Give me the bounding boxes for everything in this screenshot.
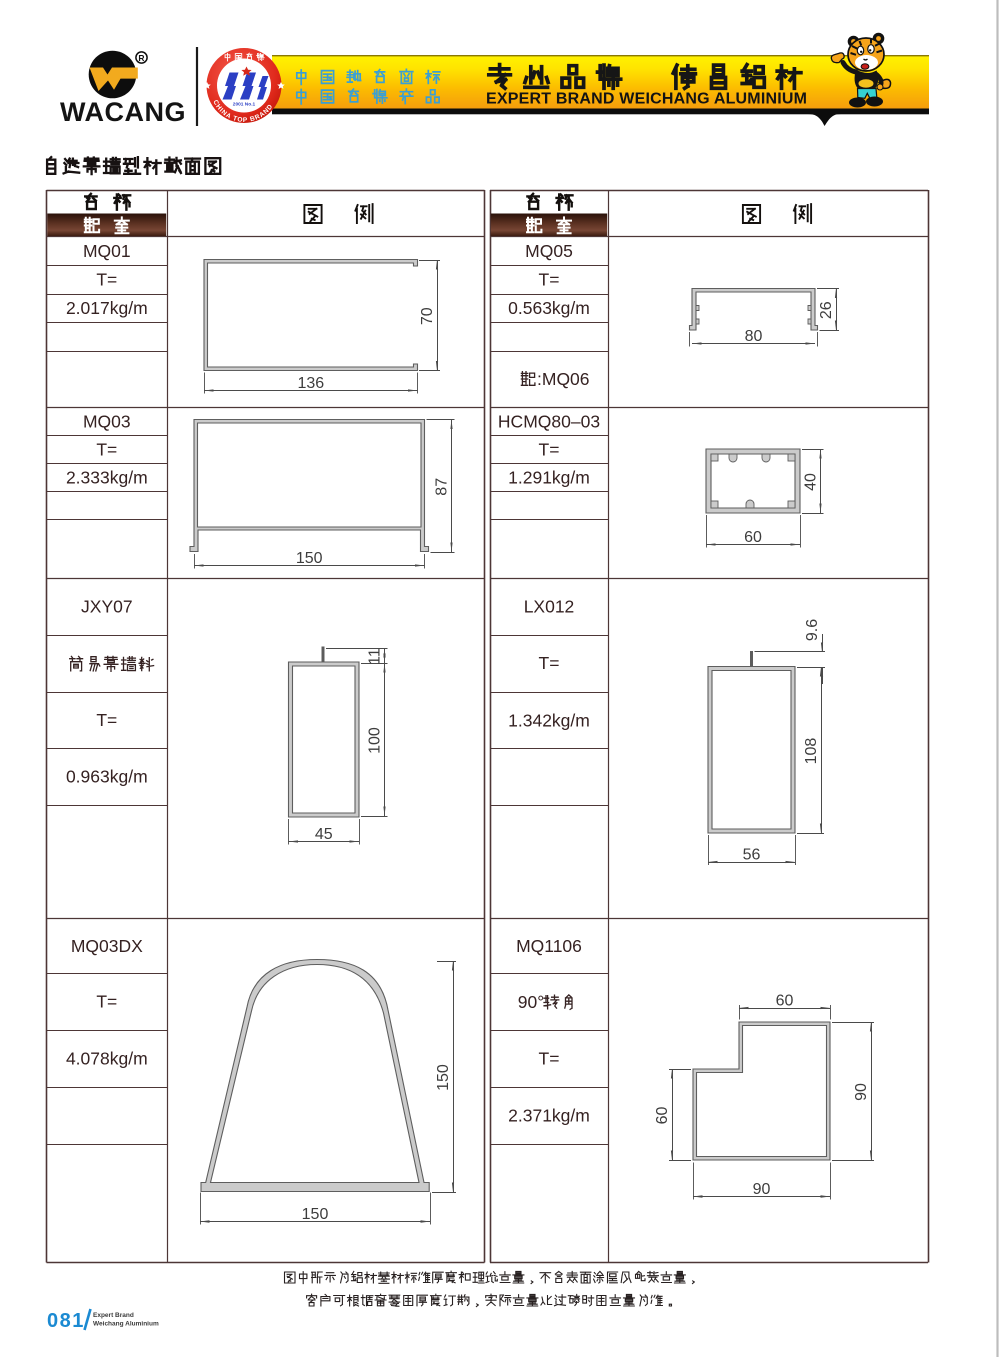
svg-text:MQ1106: MQ1106 xyxy=(516,936,582,956)
svg-text:26: 26 xyxy=(818,301,835,319)
svg-text:T=: T= xyxy=(539,270,560,290)
svg-text:60: 60 xyxy=(654,1107,671,1125)
svg-text:JXY07: JXY07 xyxy=(81,597,133,617)
svg-text:MQ03: MQ03 xyxy=(83,412,131,432)
svg-text::MQ06: :MQ06 xyxy=(537,369,590,389)
svg-text:2.017kg/m: 2.017kg/m xyxy=(66,298,148,318)
svg-text:9.6: 9.6 xyxy=(804,619,821,641)
svg-text:150: 150 xyxy=(296,550,323,567)
svg-text:WACANG: WACANG xyxy=(60,97,186,127)
svg-text:Expert Brand: Expert Brand xyxy=(93,1312,134,1319)
svg-text:2001 No.1: 2001 No.1 xyxy=(233,102,256,108)
svg-text:40: 40 xyxy=(803,473,820,491)
svg-text:T=: T= xyxy=(539,440,560,460)
svg-text:90°: 90° xyxy=(518,992,544,1012)
svg-text:45: 45 xyxy=(315,826,333,843)
svg-text:136: 136 xyxy=(297,375,324,392)
svg-text:T=: T= xyxy=(539,653,560,673)
svg-text:HCMQ80–03: HCMQ80–03 xyxy=(498,412,600,432)
svg-text:108: 108 xyxy=(803,738,820,765)
svg-text:70: 70 xyxy=(419,307,436,325)
svg-text:0.563kg/m: 0.563kg/m xyxy=(508,298,590,318)
svg-text:T=: T= xyxy=(96,270,117,290)
svg-text:87: 87 xyxy=(434,478,451,496)
svg-text:4.078kg/m: 4.078kg/m xyxy=(66,1049,148,1069)
svg-text:100: 100 xyxy=(367,727,384,754)
svg-text:MQ05: MQ05 xyxy=(525,241,573,261)
svg-text:60: 60 xyxy=(776,993,794,1010)
svg-text:Weichang Aluminium: Weichang Aluminium xyxy=(93,1321,159,1328)
svg-text:LX012: LX012 xyxy=(524,597,575,617)
svg-text:0.963kg/m: 0.963kg/m xyxy=(66,767,148,787)
svg-text:T=: T= xyxy=(96,440,117,460)
svg-text:1.342kg/m: 1.342kg/m xyxy=(508,711,590,731)
svg-text:150: 150 xyxy=(435,1064,452,1091)
svg-text:T=: T= xyxy=(96,992,117,1012)
svg-text:R: R xyxy=(138,53,144,63)
svg-text:MQ01: MQ01 xyxy=(83,241,131,261)
svg-text:1.291kg/m: 1.291kg/m xyxy=(508,468,590,488)
svg-text:90: 90 xyxy=(853,1083,870,1101)
svg-text:80: 80 xyxy=(745,328,763,345)
svg-text:081: 081 xyxy=(47,1310,85,1332)
svg-text:11: 11 xyxy=(367,648,384,665)
svg-text:EXPERT BRAND WEICHANG ALUMINIU: EXPERT BRAND WEICHANG ALUMINIUM xyxy=(486,91,807,108)
svg-text:56: 56 xyxy=(743,847,761,864)
svg-text:T=: T= xyxy=(96,710,117,730)
svg-text:90: 90 xyxy=(753,1181,771,1198)
svg-text:2.333kg/m: 2.333kg/m xyxy=(66,468,148,488)
svg-text:60: 60 xyxy=(744,529,762,546)
svg-text:2.371kg/m: 2.371kg/m xyxy=(508,1106,590,1126)
svg-text:T=: T= xyxy=(539,1049,560,1069)
svg-text:MQ03DX: MQ03DX xyxy=(71,936,143,956)
svg-text:150: 150 xyxy=(302,1206,329,1223)
